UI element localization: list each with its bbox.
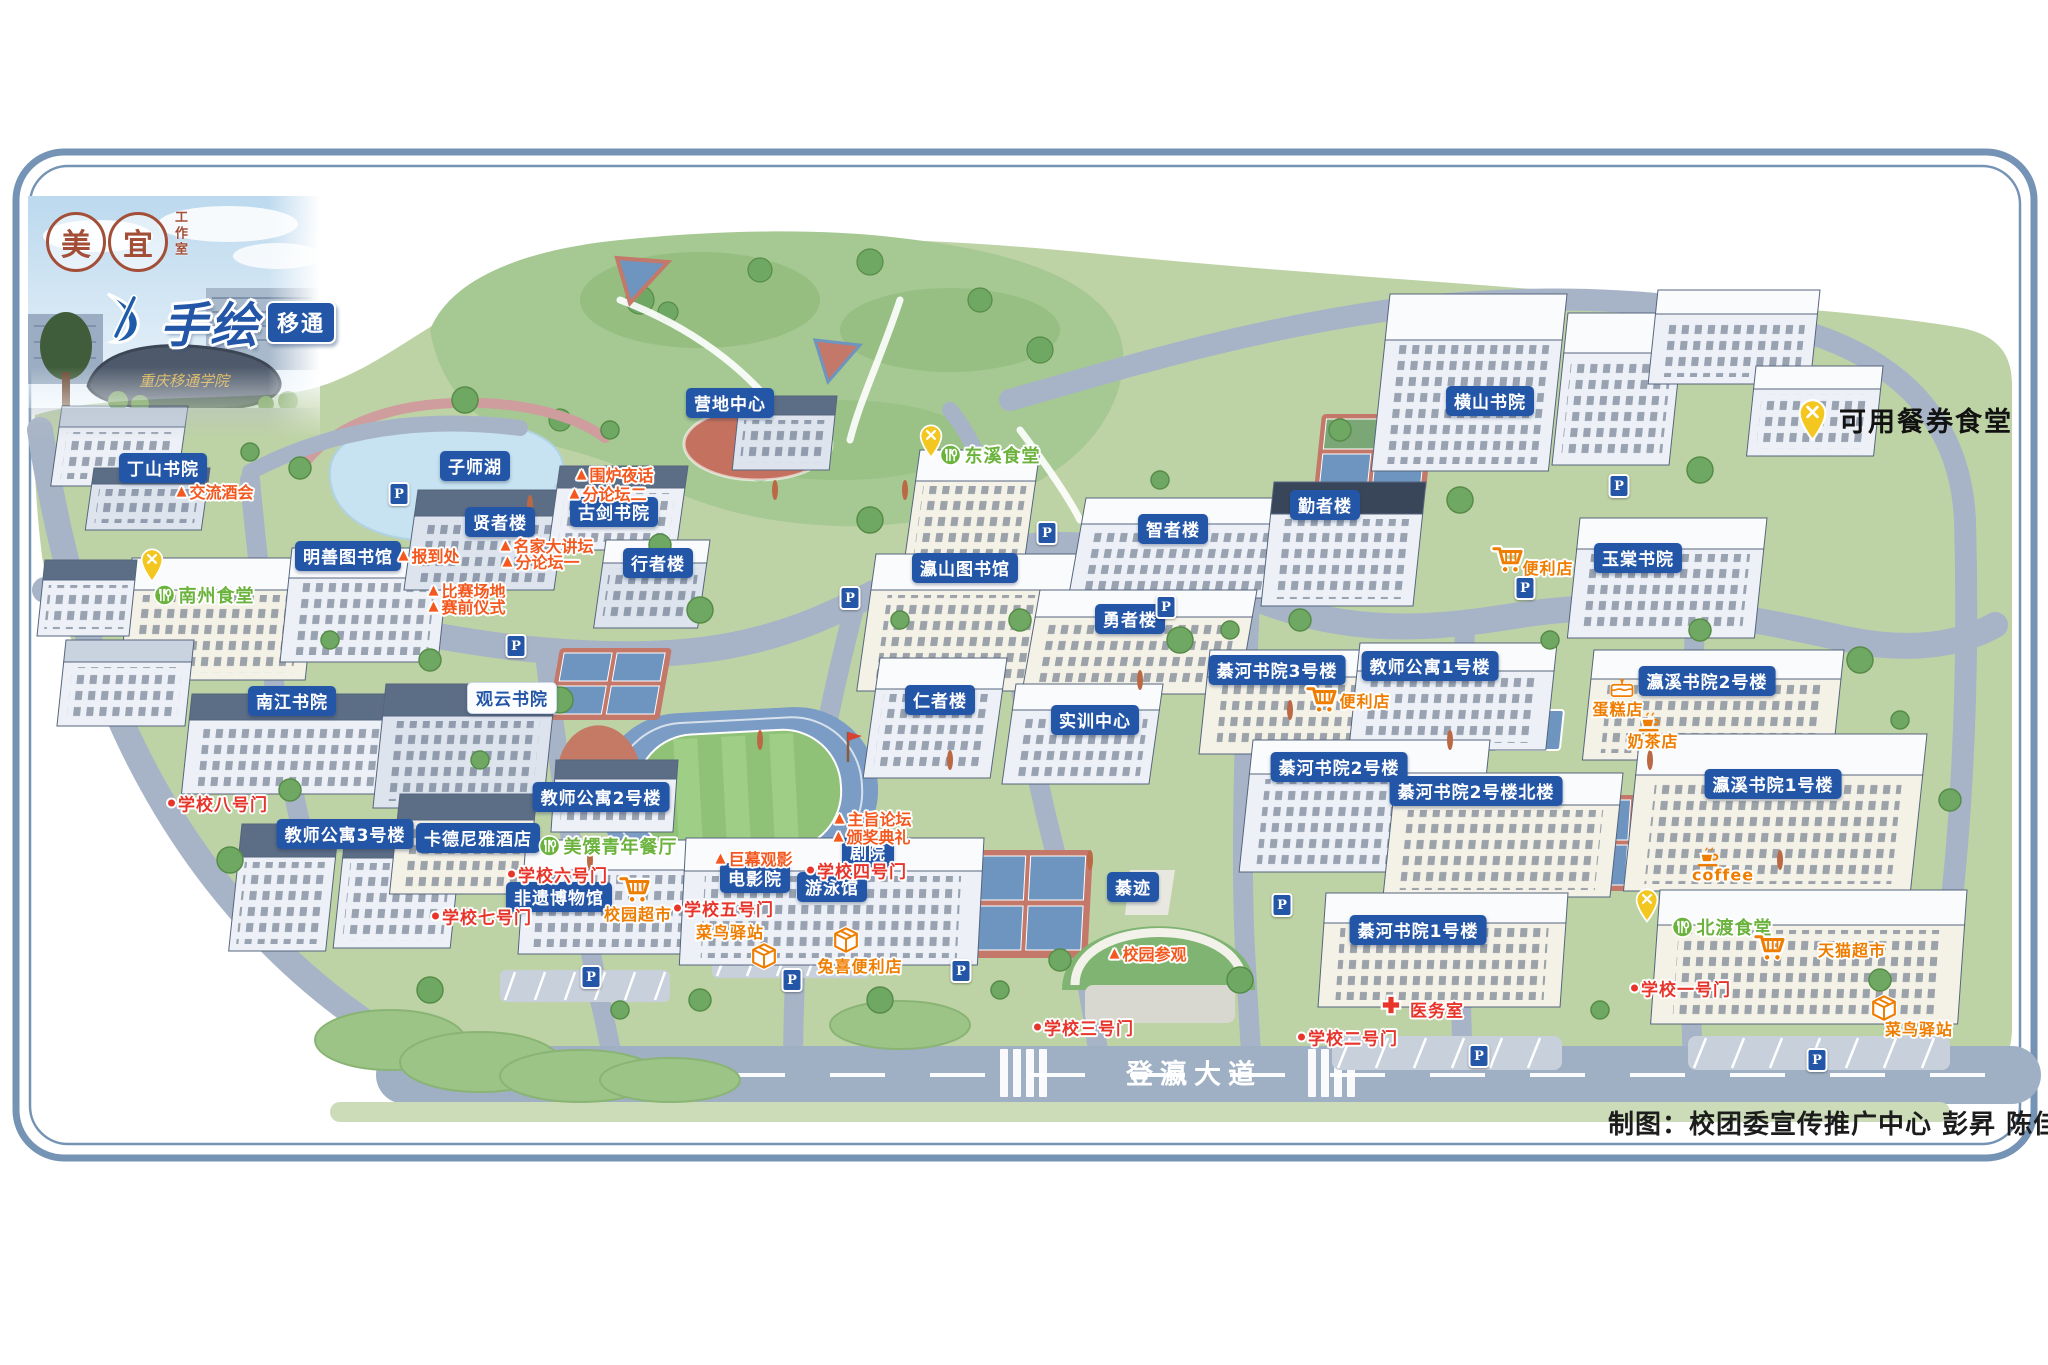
gate-label: 学校八号门 xyxy=(168,791,268,816)
gate-dot-icon xyxy=(508,871,515,878)
triangle-icon: ▲ xyxy=(502,555,512,568)
gate-dot-icon xyxy=(807,867,814,874)
event-label: ▲巨幕观影 xyxy=(715,846,792,870)
building-label: 观云书院 xyxy=(467,682,557,714)
building-label: 綦河书院3号楼 xyxy=(1209,655,1346,685)
event-label: ▲赛前仪式 xyxy=(428,594,505,618)
shop-label: 天猫超市 xyxy=(1818,937,1886,961)
shop-label: 校园超市 xyxy=(604,901,672,925)
building-label: 瀛溪书院1号楼 xyxy=(1705,769,1842,799)
dining-icon xyxy=(539,835,561,857)
box-icon xyxy=(751,942,778,971)
dining-hall-label: 美馔青年餐厅 xyxy=(539,833,678,859)
building-label: 智者楼 xyxy=(1138,514,1208,544)
cart-icon xyxy=(1490,544,1524,574)
cart-icon xyxy=(617,874,651,904)
dining-voucher-pin-icon xyxy=(1634,888,1660,923)
triangle-icon: ▲ xyxy=(834,812,844,825)
triangle-icon: ▲ xyxy=(1109,947,1119,960)
medical-label: 医务室 xyxy=(1410,997,1464,1022)
dining-voucher-pin-icon xyxy=(139,548,165,583)
triangle-icon: ▲ xyxy=(576,468,586,481)
gate-dot-icon xyxy=(674,905,681,912)
building-label: 勤者楼 xyxy=(1290,490,1360,520)
gate-label: 学校三号门 xyxy=(1034,1015,1134,1040)
dining-voucher-pin-icon xyxy=(918,424,944,459)
parking-icon: P xyxy=(1272,893,1293,917)
campus-map-page: 重庆移通学院 美 宜 工作室 手绘 移通 可用餐券食堂 xyxy=(0,0,2048,1365)
gate-label: 学校五号门 xyxy=(674,896,774,921)
building-label: 綦河书院2号楼北楼 xyxy=(1390,776,1563,806)
triangle-icon: ▲ xyxy=(715,852,725,865)
building-label: 綦河书院2号楼 xyxy=(1271,752,1408,782)
medical-cross-icon xyxy=(1379,993,1403,1017)
building-label: 玉棠书院 xyxy=(1594,543,1682,573)
building-label: 瀛山图书馆 xyxy=(912,553,1018,583)
dining-hall-label: 东溪食堂 xyxy=(940,442,1041,468)
dining-icon xyxy=(1672,916,1694,938)
gate-label: 学校四号门 xyxy=(807,858,907,883)
building-label: 綦河书院1号楼 xyxy=(1350,915,1487,945)
parking-icon: P xyxy=(1515,576,1536,600)
parking-icon: P xyxy=(1156,595,1177,619)
building-label: 綦迹 xyxy=(1107,872,1159,902)
cake-icon xyxy=(1609,677,1635,700)
event-label: ▲分论坛二 xyxy=(569,481,646,505)
label-layer: 丁山书院子师湖贤者楼古剑书院明善图书馆行者楼南江书院教师公寓3号楼卡德尼雅酒店教… xyxy=(0,0,2048,1365)
building-label: 明善图书馆 xyxy=(295,541,401,571)
box-icon xyxy=(833,926,860,955)
dining-hall-label: 南州食堂 xyxy=(154,582,255,608)
gate-dot-icon xyxy=(1034,1024,1041,1031)
building-label: 瀛溪书院2号楼 xyxy=(1639,666,1776,696)
building-label: 教师公寓3号楼 xyxy=(277,819,414,849)
triangle-icon: ▲ xyxy=(428,600,438,613)
building-label: 卡德尼雅酒店 xyxy=(416,823,540,853)
event-label: ▲分论坛一 xyxy=(502,549,579,573)
gate-dot-icon xyxy=(432,913,439,920)
building-label: 勇者楼 xyxy=(1095,604,1165,634)
building-label: 横山书院 xyxy=(1446,386,1534,416)
cup-icon xyxy=(1636,710,1662,733)
event-label: ▲报到处 xyxy=(398,543,459,567)
gate-label: 学校七号门 xyxy=(432,904,532,929)
parking-icon: P xyxy=(1469,1044,1490,1068)
parking-icon: P xyxy=(782,968,803,992)
triangle-icon: ▲ xyxy=(569,487,579,500)
event-label: ▲校园参观 xyxy=(1109,941,1186,965)
parking-icon: P xyxy=(1807,1048,1828,1072)
building-label: 营地中心 xyxy=(686,388,774,418)
building-label: 仁者楼 xyxy=(905,685,975,715)
shop-label: 菜鸟驿站 xyxy=(696,919,764,943)
parking-icon: P xyxy=(840,586,861,610)
building-label: 子师湖 xyxy=(440,451,510,481)
triangle-icon: ▲ xyxy=(176,485,186,498)
gate-dot-icon xyxy=(1631,985,1638,992)
cart-icon xyxy=(1752,932,1786,962)
parking-icon: P xyxy=(951,959,972,983)
building-label: 教师公寓2号楼 xyxy=(533,782,670,812)
building-label: 行者楼 xyxy=(623,548,693,578)
building-label: 教师公寓1号楼 xyxy=(1362,651,1499,681)
dining-icon xyxy=(154,584,176,606)
event-label: ▲交流酒会 xyxy=(176,479,253,503)
parking-icon: P xyxy=(389,482,410,506)
shop-label: 便利店 xyxy=(1339,688,1390,712)
triangle-icon: ▲ xyxy=(398,549,408,562)
box-icon xyxy=(1871,994,1898,1023)
parking-icon: P xyxy=(1037,521,1058,545)
event-label: ▲颁奖典礼 xyxy=(833,824,910,848)
gate-label: 学校二号门 xyxy=(1298,1025,1398,1050)
parking-icon: P xyxy=(1609,474,1630,498)
cart-icon xyxy=(1304,684,1338,714)
parking-icon: P xyxy=(581,965,602,989)
triangle-icon: ▲ xyxy=(833,830,843,843)
building-label: 实训中心 xyxy=(1051,705,1139,735)
cup-icon xyxy=(1695,845,1721,868)
shop-label: 兔喜便利店 xyxy=(817,953,902,977)
gate-dot-icon xyxy=(168,800,175,807)
shop-label: coffee xyxy=(1692,866,1754,885)
gate-dot-icon xyxy=(1298,1034,1305,1041)
gate-label: 学校一号门 xyxy=(1631,976,1731,1001)
parking-icon: P xyxy=(506,634,527,658)
gate-label: 学校六号门 xyxy=(508,862,608,887)
building-label: 南江书院 xyxy=(248,686,336,716)
